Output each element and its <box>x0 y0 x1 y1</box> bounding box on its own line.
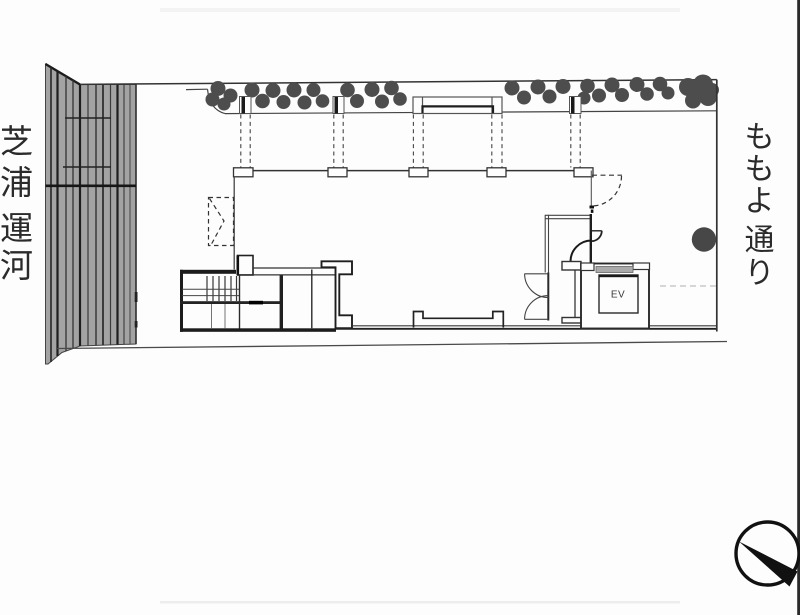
svg-text:EV: EV <box>611 290 625 301</box>
svg-text:ももよ通り: ももよ通り <box>745 121 775 290</box>
